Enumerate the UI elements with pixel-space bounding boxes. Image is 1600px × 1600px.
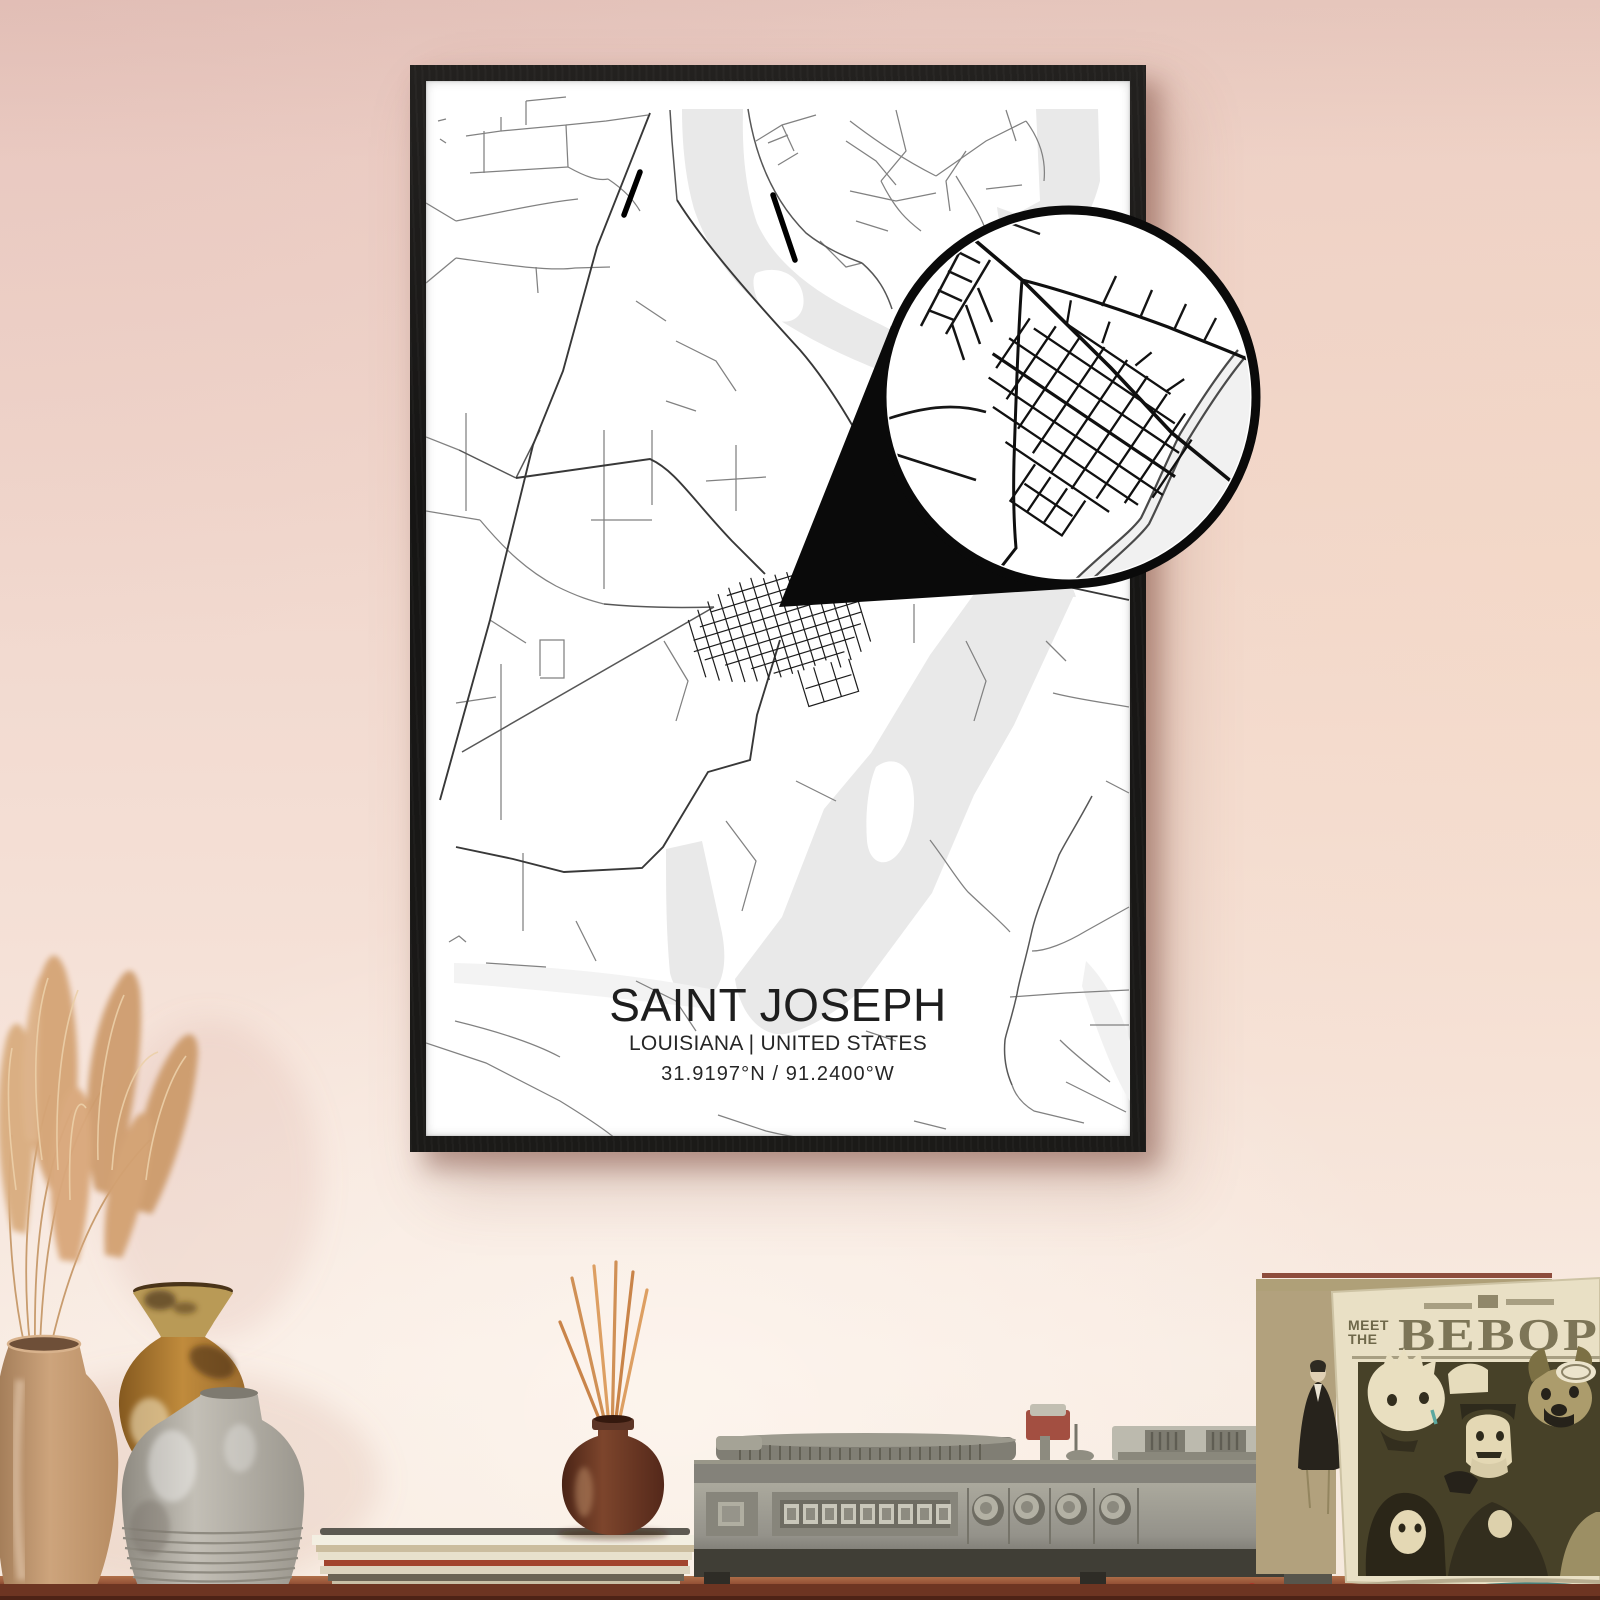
svg-text:BEBOP: BEBOP bbox=[1398, 1310, 1599, 1360]
svg-text:THE: THE bbox=[1348, 1331, 1378, 1347]
